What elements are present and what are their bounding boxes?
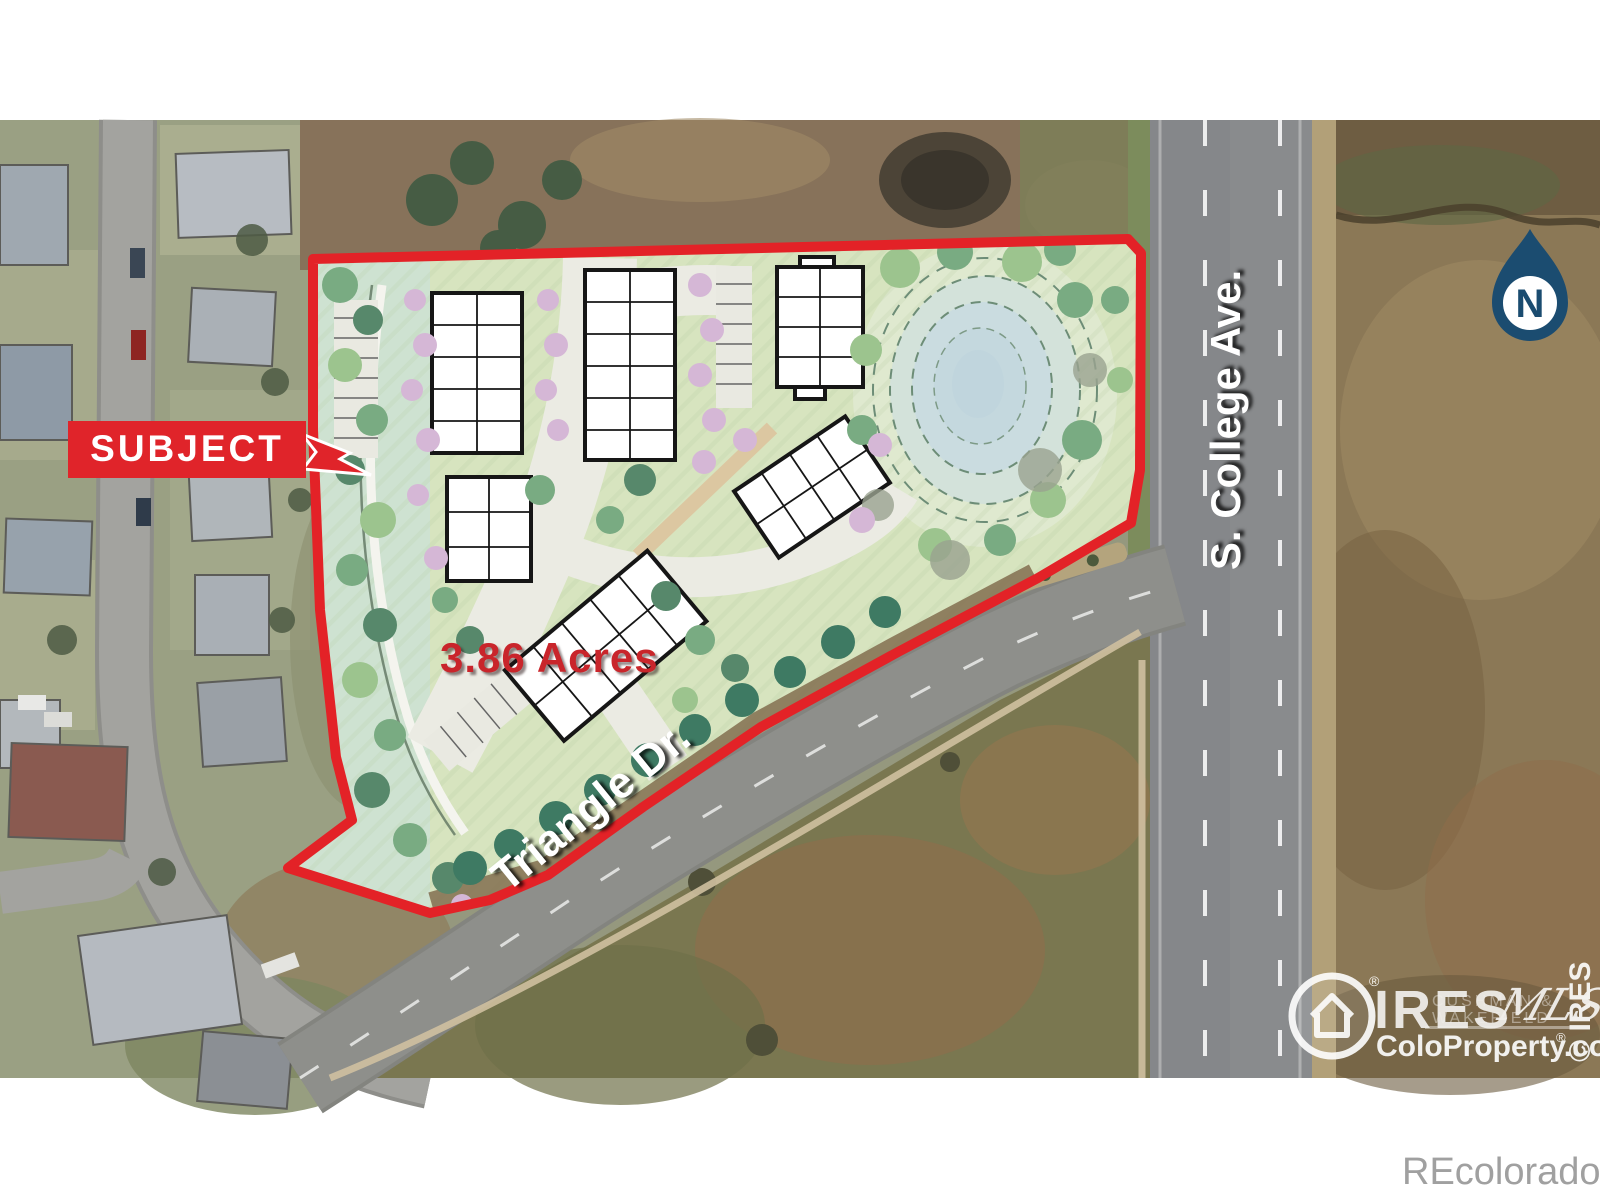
acreage-label: 3.86 Acres: [440, 634, 659, 681]
aerial-site-plan-image: SUBJECT 3.86 Acres Triangle Dr. S. Colle…: [0, 0, 1600, 1200]
college-avenue-label: S. College Ave.: [1202, 270, 1249, 570]
aerial-photo: SUBJECT 3.86 Acres Triangle Dr. S. Colle…: [0, 118, 1600, 1115]
north-letter: N: [1516, 282, 1545, 326]
building-c: [777, 257, 863, 399]
building-a: [432, 293, 522, 453]
subject-label: SUBJECT: [90, 428, 284, 469]
recolorado-watermark: REcolorado: [1402, 1151, 1600, 1193]
building-e: [447, 477, 531, 581]
building-b: [585, 270, 675, 460]
listing-photo-page: { "annotations": { "subject": "SUBJECT",…: [0, 0, 1600, 1200]
copyright-ires-vertical: © IRES: [1564, 962, 1597, 1062]
ires-house-logo-icon: [1292, 976, 1372, 1056]
